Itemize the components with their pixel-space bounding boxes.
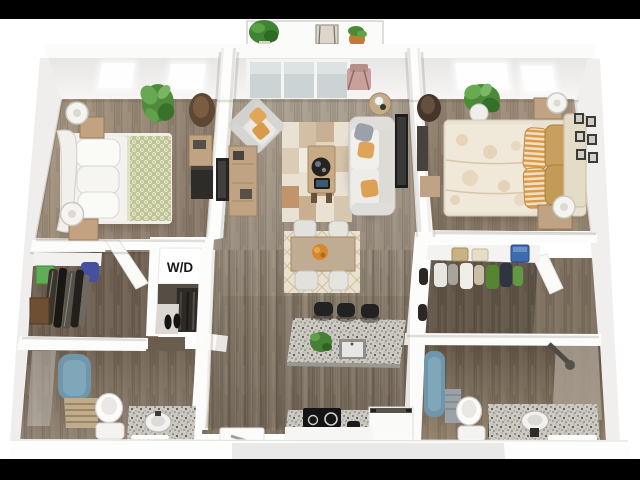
svg-text:W/D: W/D	[167, 260, 193, 275]
